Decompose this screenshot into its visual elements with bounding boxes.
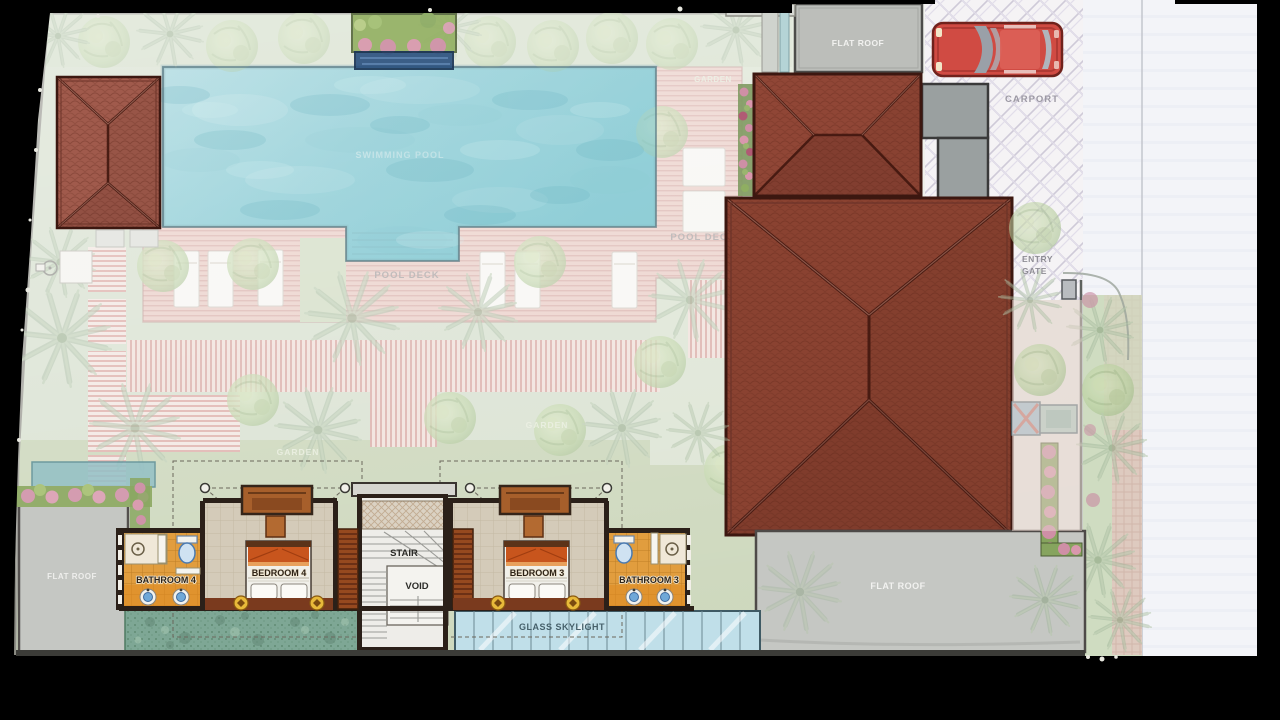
svg-text:GATE: GATE [1022,266,1047,276]
svg-text:BEDROOM 3: BEDROOM 3 [510,568,565,578]
svg-text:BEDROOM 4: BEDROOM 4 [252,568,307,578]
svg-text:ENTRY: ENTRY [1022,254,1053,264]
svg-text:VOID: VOID [405,581,428,592]
svg-text:BATHROOM 4: BATHROOM 4 [136,575,196,585]
svg-text:BATHROOM 3: BATHROOM 3 [619,575,679,585]
svg-text:CARPORT: CARPORT [1005,94,1059,105]
svg-text:FLAT ROOF: FLAT ROOF [832,38,885,48]
svg-text:FLAT ROOF: FLAT ROOF [47,572,97,581]
svg-text:FLAT ROOF: FLAT ROOF [870,581,925,591]
svg-text:GLASS SKYLIGHT: GLASS SKYLIGHT [519,622,605,632]
svg-text:STAIR: STAIR [390,548,418,559]
